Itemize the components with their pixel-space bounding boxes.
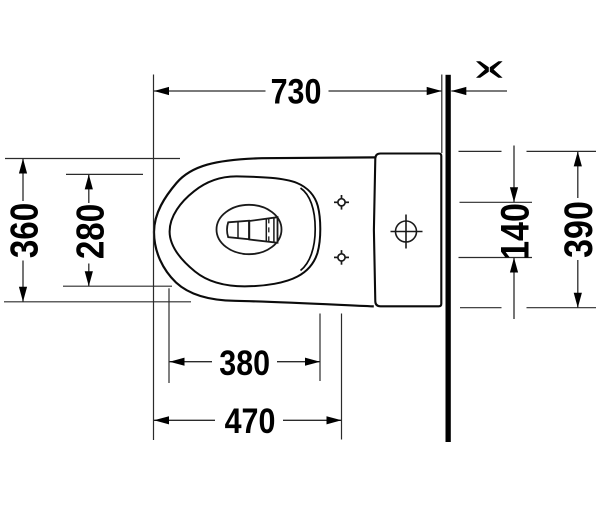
svg-text:730: 730 (271, 71, 322, 110)
svg-text:380: 380 (219, 343, 270, 382)
svg-text:280: 280 (68, 204, 112, 259)
svg-text:140: 140 (492, 203, 537, 260)
svg-text:470: 470 (225, 401, 276, 440)
svg-text:390: 390 (555, 201, 600, 258)
svg-text:360: 360 (2, 203, 46, 258)
